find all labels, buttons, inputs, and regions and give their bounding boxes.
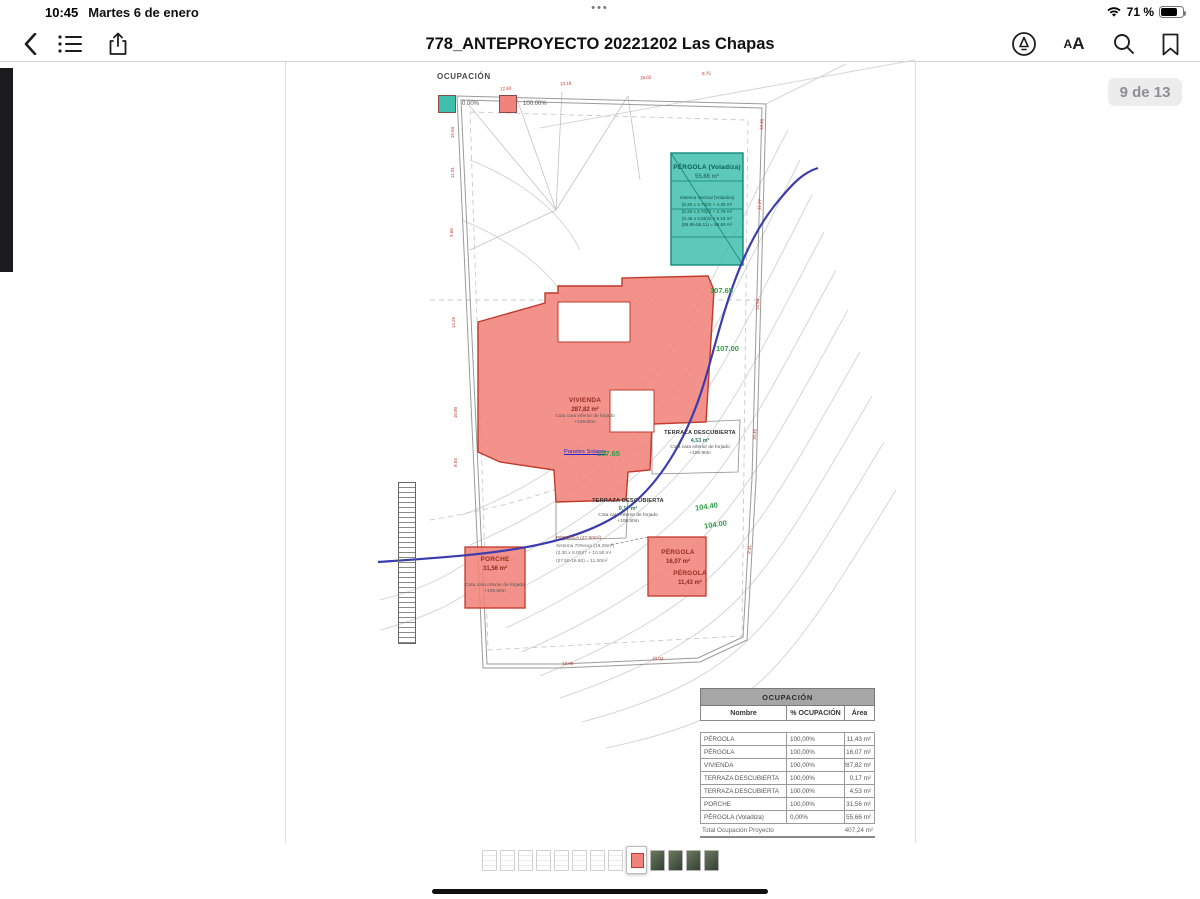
total-value: 407,24 m²	[845, 827, 873, 834]
bmark: 13.40	[759, 119, 765, 131]
legend-label-occupied: 100.00%	[523, 101, 547, 107]
table-row: PÉRGOLA100,00%11,43 m²	[700, 733, 875, 746]
contour-lbl: 107.00	[716, 344, 739, 353]
table-row: PÉRGOLA (Voladiza)0,00%55,66 m²	[700, 811, 875, 824]
bmark: 11.27	[757, 199, 763, 210]
occupation-table-rows: PÉRGOLA100,00%11,43 m²PÉRGOLA100,00%16,0…	[700, 732, 875, 824]
contour-lbl: 107.65	[710, 286, 733, 295]
bmark: 11.91	[450, 167, 455, 178]
bmark: 15.04	[450, 127, 455, 138]
bmark: 14.84	[755, 299, 761, 311]
thumbnail-page-4[interactable]	[536, 850, 551, 871]
occupation-table: OCUPACIÓN Nombre % OCUPACIÓN Área PÉRGOL…	[700, 688, 875, 838]
table-row: PORCHE100,00%31,56 m²	[700, 798, 875, 811]
thumbnail-page-6[interactable]	[572, 850, 587, 871]
pergola-voladiza-label: PÉRGOLA (Voladiza) 55.66 m² Sistema Vert…	[666, 164, 748, 229]
occupation-total-row: Total Ocupación Proyecto 407,24 m²	[700, 824, 875, 838]
page-thumbnail-strip	[0, 846, 1200, 874]
table-row: PÉRGOLA100,00%16,07 m²	[700, 746, 875, 759]
contour-lbl: 107.65	[597, 449, 620, 458]
table-row: TERRAZA DESCUBIERTA100,00%0,17 m²	[700, 772, 875, 785]
col-pct: % OCUPACIÓN	[787, 706, 845, 720]
bmark: 10.45	[752, 429, 758, 441]
thumbnail-page-5[interactable]	[554, 850, 569, 871]
legend-title: OCUPACIÓN	[437, 72, 491, 81]
col-nombre: Nombre	[701, 706, 787, 720]
bmark: 8.04	[453, 458, 458, 467]
terraza-right-label: TERRAZA DESCUBIERTA 4,53 m² Cota cara in…	[658, 430, 742, 458]
porche-label: PORCHE 31,56 m² Cota cara inferior de fo…	[465, 556, 525, 596]
thumbnail-page-3[interactable]	[518, 850, 533, 871]
legend-label-free: 0.00%	[462, 101, 479, 107]
occupation-table-title: OCUPACIÓN	[700, 688, 875, 706]
thumbnail-page-7[interactable]	[590, 850, 605, 871]
pergola-sq1-label: PÉRGOLA 16,07 m²	[652, 549, 704, 566]
bmark: 9.31	[747, 545, 753, 554]
legend-swatch-occupied	[499, 95, 517, 113]
bmark: 10.80	[453, 407, 458, 418]
pergola-formula-block: PÉRGOLA (27.50m²)Sistema 70%sup (19,25m²…	[556, 535, 662, 566]
thumbnail-page-1[interactable]	[482, 850, 497, 871]
pergola-voladiza-notes: Sistema Vertical (Voladiza)(8.30 x 4.70)…	[666, 195, 748, 229]
table-row: TERRAZA DESCUBIERTA100,00%4,53 m²	[700, 785, 875, 798]
bmark: 12.93	[500, 86, 512, 92]
thumbnail-page-12[interactable]	[686, 850, 701, 871]
bmark: 16.02	[640, 75, 652, 81]
vivienda-label: VIVIENDA 287,82 m² Cota cara inferior de…	[540, 397, 630, 457]
bmark: 12.66	[562, 661, 573, 666]
thumbnail-page-13[interactable]	[704, 850, 719, 871]
bmark: 14.25	[451, 317, 456, 328]
home-indicator[interactable]	[432, 889, 768, 894]
occupation-legend: 0.00% 100.00%	[438, 95, 561, 113]
thumbnail-page-2[interactable]	[500, 850, 515, 871]
bmark: 9.66	[449, 228, 454, 237]
thumbnail-page-9[interactable]	[626, 846, 647, 874]
bmark: 10.18	[560, 81, 572, 87]
bmark: 10.02	[652, 656, 663, 661]
legend-swatch-free	[438, 95, 456, 113]
terraza-lower-label: TERRAZA DESCUBIERTA 0,17 m² Cota cara in…	[586, 498, 670, 526]
pergola-sq2-label: PÉRGOLA 11,43 m²	[664, 570, 716, 587]
total-label: Total Ocupación Proyecto	[702, 827, 774, 834]
thumbnail-page-11[interactable]	[668, 850, 683, 871]
occupation-table-header: Nombre % OCUPACIÓN Área	[700, 706, 875, 721]
table-row: VIVIENDA100,00%287,82 m²	[700, 759, 875, 772]
ramp-hatch	[398, 482, 416, 644]
thumbnail-page-10[interactable]	[650, 850, 665, 871]
col-area: Área	[845, 706, 874, 720]
bmark: 9.75	[702, 71, 711, 77]
thumbnail-page-8[interactable]	[608, 850, 623, 871]
pdf-viewer-screen: 10:45Martes 6 de enero ••• 71 % 778_ANTE…	[0, 0, 1200, 899]
